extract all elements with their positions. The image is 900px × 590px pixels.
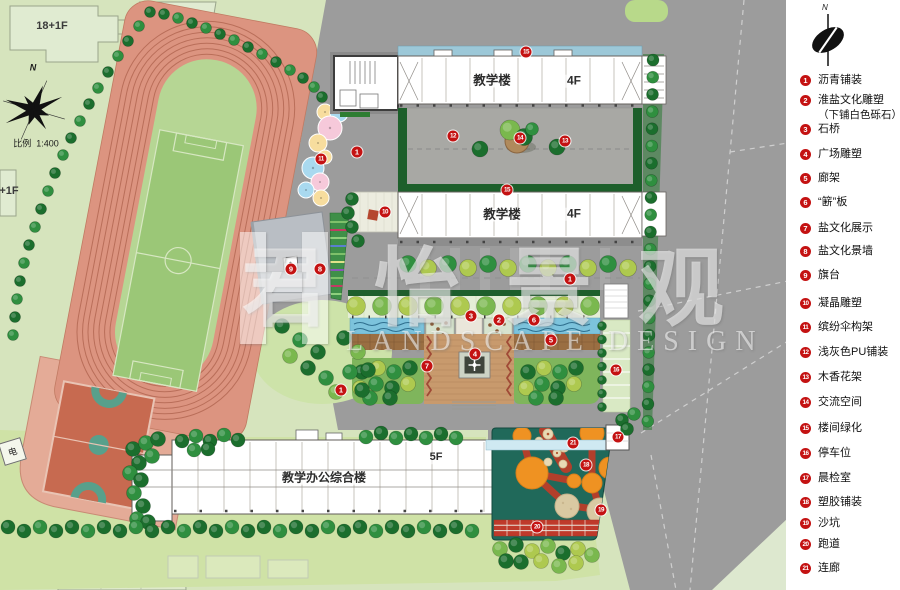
plan-north-label: N [30,63,37,72]
plan-marker: 7 [422,361,433,372]
legend-item: 3石桥 [800,123,840,136]
watermark-logo-icon [240,232,266,344]
plan-marker: 21 [568,438,579,449]
legend-item: 19沙坑 [800,517,840,530]
plan-marker: 5 [546,335,557,346]
scale-value: 1:400 [36,138,59,148]
legend-item-number: 11 [800,322,811,333]
legend-item: 14交流空间 [800,396,862,409]
legend-item-number: 7 [800,223,811,234]
plan-marker: 1 [352,147,363,158]
teaching-building-mid-label: 教学楼 [480,208,524,221]
plan-marker: 20 [532,522,543,533]
legend-item-label: 交流空间 [818,396,862,409]
plan-scale: 比例 1:400 [13,139,59,148]
gate-building [330,52,402,117]
legend-item-label: “簖”板 [818,196,847,209]
plan-marker: 13 [560,136,571,147]
legend-item-number: 5 [800,173,811,184]
legend-item-label: 停车位 [818,447,851,460]
plan-marker: 1 [565,274,576,285]
context-building-label: 18+1F [36,21,68,33]
context-building-label-partial: +1F [0,186,19,198]
legend-item: 13木香花架 [800,371,862,384]
legend-item-label: 淮盐文化雕塑 [818,94,884,107]
plan-marker: 11 [316,154,327,165]
legend-item: 1沥青铺装 [800,74,862,87]
legend-item-label: 盐文化展示 [818,222,873,235]
legend-item-label: 跑道 [818,538,840,551]
plan-marker: 2 [494,315,505,326]
scale-label: 比例 [13,138,31,148]
legend-item: 21连廊 [800,562,840,575]
legend-item: 18塑胶铺装 [800,496,862,509]
legend-item-number: 15 [800,423,811,434]
legend-item-label: 楼间绿化 [818,422,862,435]
office-complex-label: 教学办公综合楼 [279,472,369,485]
legend-item-number: 17 [800,473,811,484]
plan-marker: 17 [613,432,624,443]
teaching-building-mid [398,184,666,246]
legend-item: 15楼间绿化 [800,422,862,435]
legend-item: 11缤纷伞构架 [800,321,873,334]
legend-item-label: 浅灰色PU铺装 [818,346,888,359]
legend-item-label: 廊架 [818,172,840,185]
plan-marker: 15 [502,185,513,196]
plan-marker: 1 [336,385,347,396]
legend-item: 2淮盐文化雕塑 [800,94,884,107]
legend-item-number: 16 [800,448,811,459]
legend-item-number: 4 [800,149,811,160]
legend-item-number: 19 [800,518,811,529]
plan-marker: 3 [466,311,477,322]
legend-item: 9旗台 [800,269,840,282]
teaching-building-top-floors: 4F [565,75,583,88]
plan-marker: 16 [611,365,622,376]
legend-item: 8盐文化景墙 [800,245,873,258]
legend-item-number: 12 [800,347,811,358]
legend-item: 4广场雕塑 [800,148,862,161]
rubber-track-lanes [494,520,602,536]
road-median-green [625,0,668,22]
plan-marker: 9 [286,264,297,275]
site-plan-map [0,0,900,590]
legend-item-number: 8 [800,246,811,257]
site-plan-sheet: 君怡景观 LANDSCAPE DESIGN N 比例 1:400 18+1F +… [0,0,900,590]
teaching-building-top-label: 教学楼 [470,74,514,87]
central-quad [398,108,642,188]
legend-item-number: 14 [800,397,811,408]
plan-marker: 14 [515,133,526,144]
plan-marker: 4 [470,349,481,360]
water-channel-left [350,318,424,334]
plan-marker: 8 [315,264,326,275]
legend-item: 6“簖”板 [800,196,847,209]
legend-item-number: 6 [800,197,811,208]
office-complex-floors: 5F [428,452,445,464]
legend-item-label: 沙坑 [818,517,840,530]
legend-item-label: 沥青铺装 [818,74,862,87]
legend-item: 20跑道 [800,538,840,551]
legend-item-label-line2: （下铺白色砾石） [818,107,900,122]
legend-item-number: 10 [800,298,811,309]
plan-marker: 19 [596,505,607,516]
legend-item-label: 木香花架 [818,371,862,384]
plan-marker: 18 [581,460,592,471]
legend-item-label: 旗台 [818,269,840,282]
legend-item-number: 1 [800,75,811,86]
legend-item-label: 缤纷伞构架 [818,321,873,334]
legend-item-label: 连廊 [818,562,840,575]
legend-item-number: 13 [800,372,811,383]
legend-item: 12浅灰色PU铺装 [800,346,888,359]
legend-item-label: 盐文化景墙 [818,245,873,258]
teaching-building-top [398,46,666,106]
legend-panel: N 1沥青铺装2淮盐文化雕塑（下铺白色砾石）3石桥4广场雕塑5廊架6“簖”板7盐… [786,0,900,590]
plan-marker: 10 [380,207,391,218]
legend-item-label: 广场雕塑 [818,148,862,161]
legend-item-number: 3 [800,124,811,135]
legend-item-number: 20 [800,539,811,550]
legend-item-number: 21 [800,563,811,574]
legend-item: 10凝晶雕塑 [800,297,862,310]
legend-item-label: 塑胶铺装 [818,496,862,509]
plan-marker: 6 [529,315,540,326]
legend-item: 16停车位 [800,447,851,460]
legend-item-number: 18 [800,497,811,508]
plan-marker: 15 [521,47,532,58]
connecting-corridor [486,440,610,450]
legend-item: 17晨检室 [800,472,851,485]
legend-item-label: 凝晶雕塑 [818,297,862,310]
legend-item-label: 晨检室 [818,472,851,485]
north-arrow-icon [802,8,862,70]
legend-item-label: 石桥 [818,123,840,136]
parking-strip [603,284,630,412]
legend-item-number: 2 [800,95,811,106]
legend-item: 7盐文化展示 [800,222,873,235]
legend-item: 5廊架 [800,172,840,185]
plan-marker: 12 [448,131,459,142]
legend-item-number: 9 [800,270,811,281]
teaching-building-mid-floors: 4F [565,208,583,221]
